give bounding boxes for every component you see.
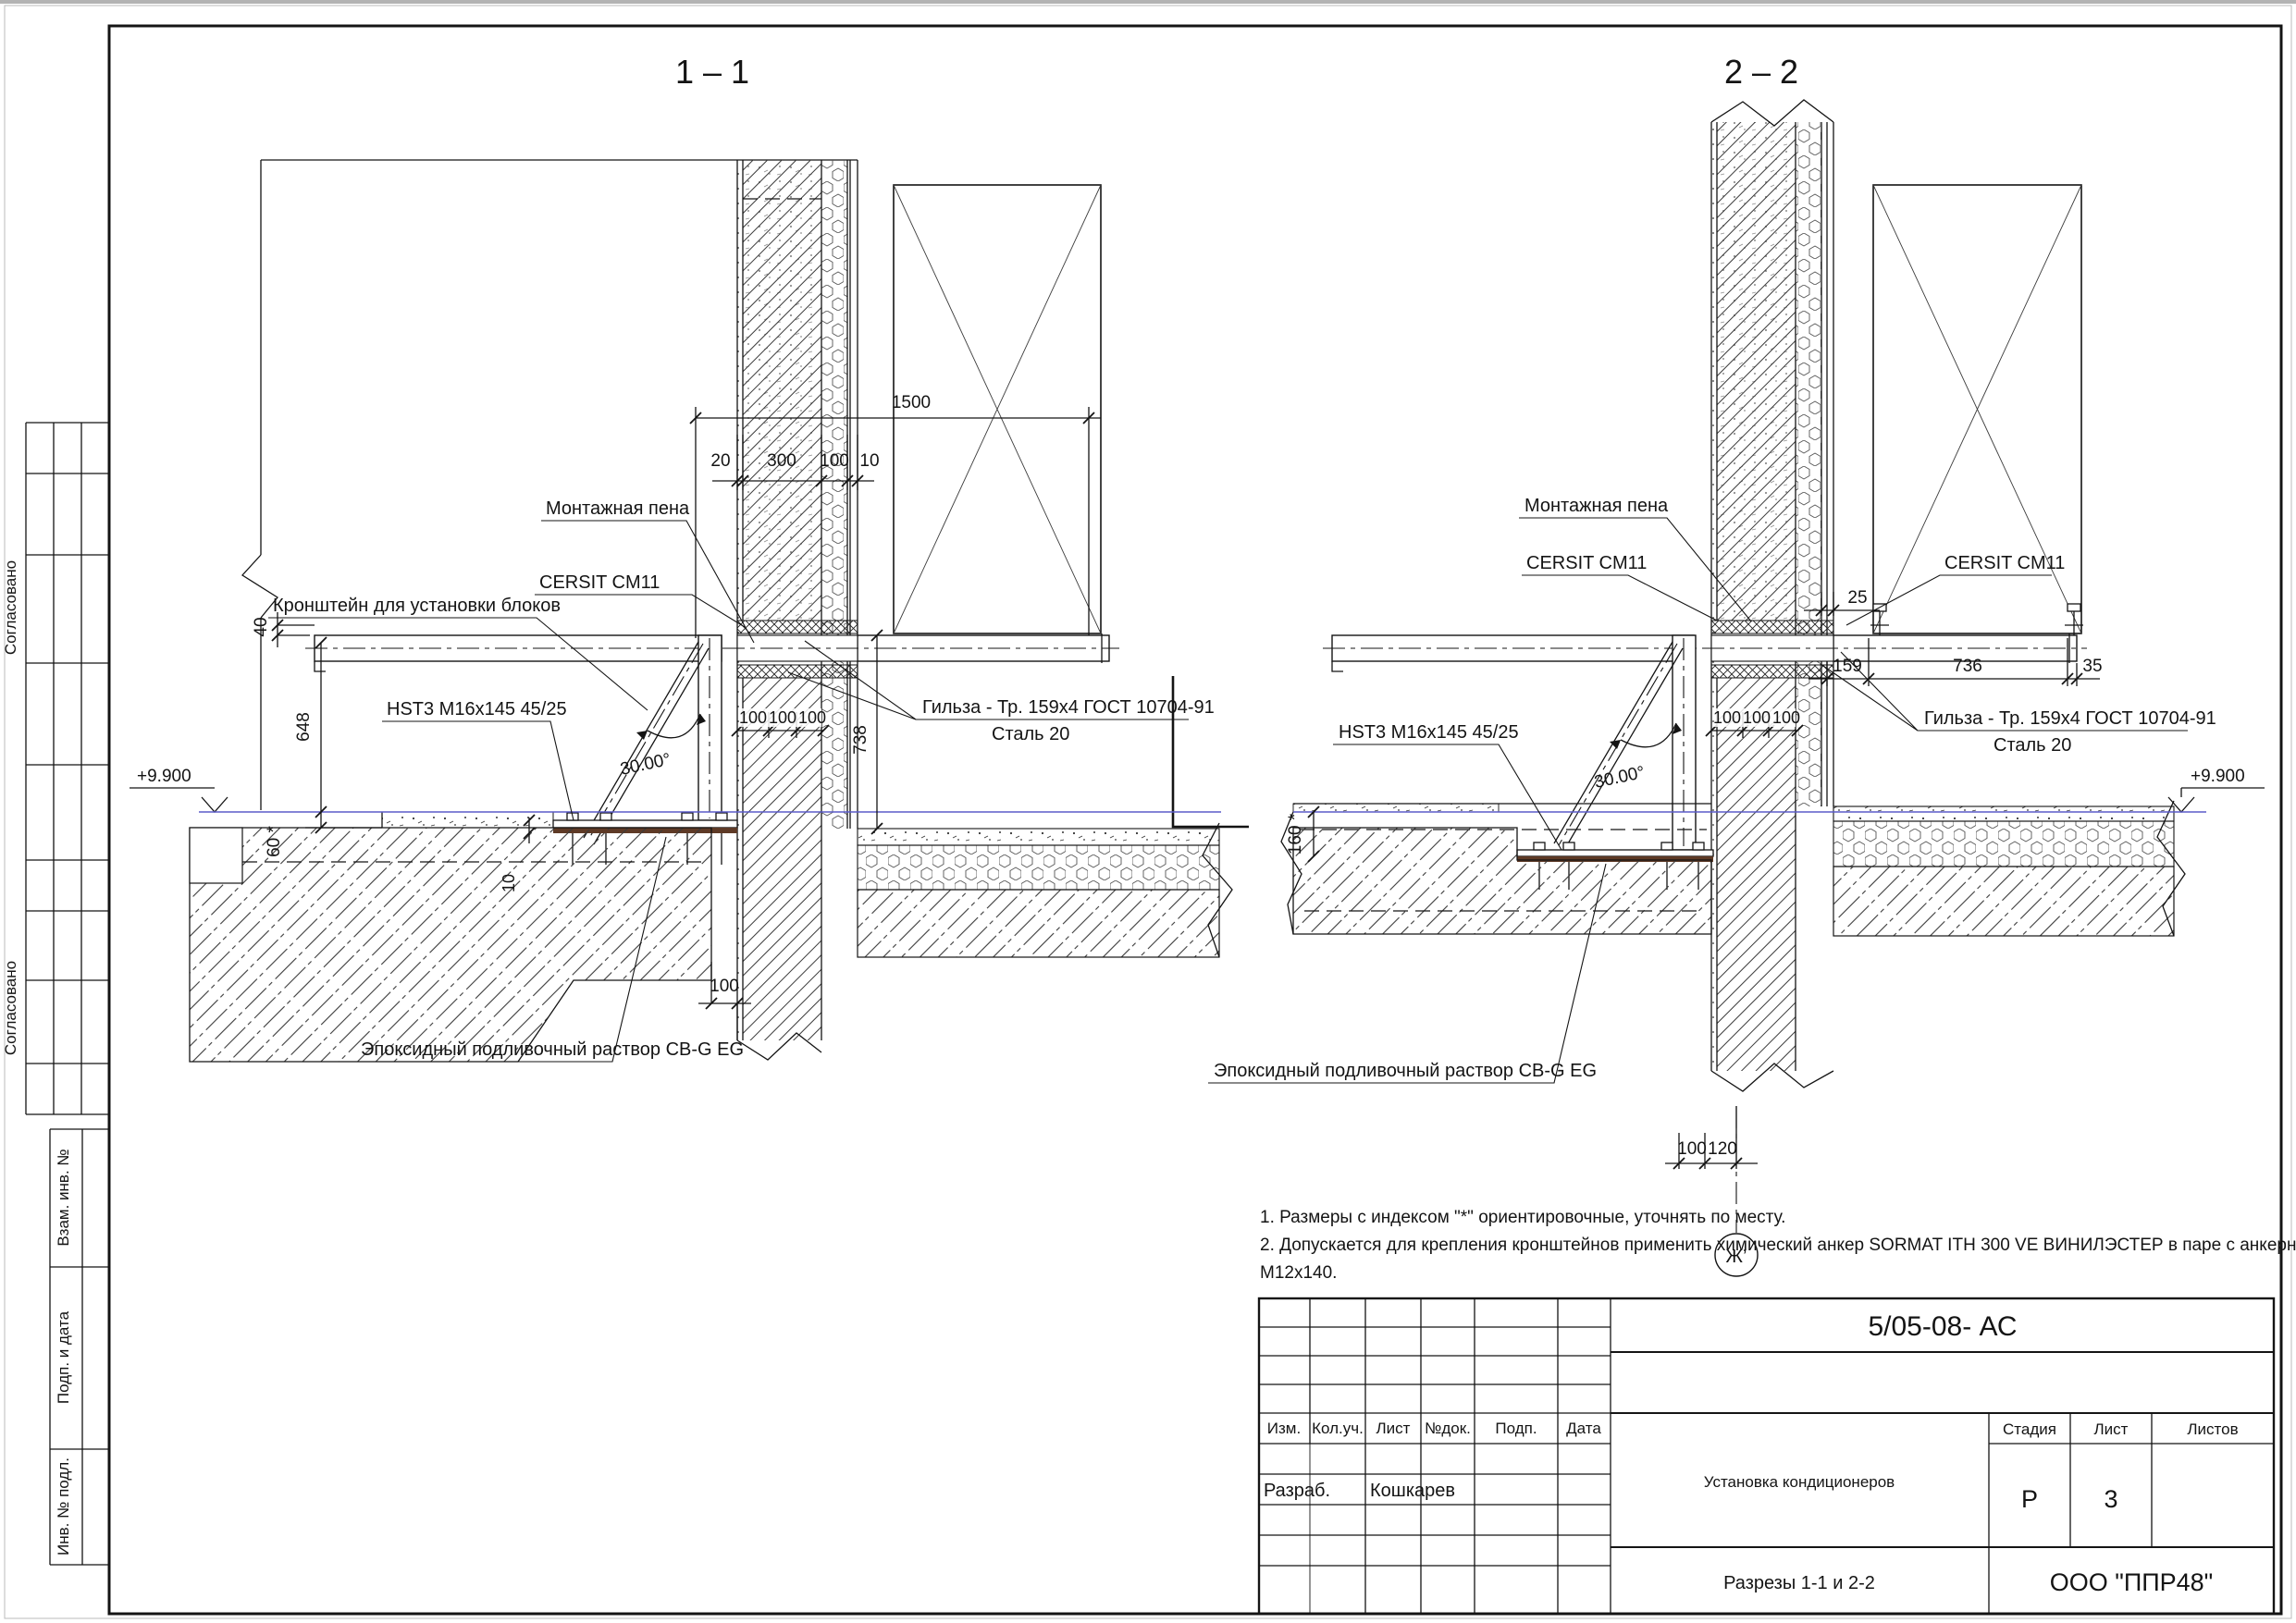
mortar-strip-top-11 bbox=[737, 621, 858, 633]
tb-h-ndok: №док. bbox=[1425, 1420, 1471, 1437]
tb-h-data: Дата bbox=[1566, 1420, 1601, 1437]
sidebar-label-soglasovano-1: Согласовано bbox=[2, 560, 19, 655]
dim-100-1-label-22: 100 bbox=[1713, 708, 1741, 727]
revision-table bbox=[1259, 1298, 1611, 1614]
tb-h-list: Лист bbox=[1376, 1420, 1411, 1437]
bracket-brace-22 bbox=[1554, 642, 1683, 850]
sidebar-table-2 bbox=[26, 860, 109, 1114]
dim-160-22: 160 * bbox=[1286, 806, 1319, 862]
dim-648-11: 648 bbox=[294, 637, 327, 818]
section-2-2: 2 – 2 30.00° bbox=[1208, 53, 2265, 1276]
base-plate-22 bbox=[1517, 850, 1713, 856]
title-block: Изм. Кол.уч. Лист №док. Подп. Дата Разра… bbox=[1259, 1298, 2274, 1614]
sidebar-label-vzam: Взам. инв. № bbox=[55, 1149, 72, 1246]
wall-concrete-upper-speckle-22 bbox=[1717, 122, 1796, 621]
svg-text:CERSIT CM11: CERSIT CM11 bbox=[539, 572, 660, 593]
svg-text:HST3 M16x145 45/25: HST3 M16x145 45/25 bbox=[387, 699, 567, 719]
label-hst-11: HST3 M16x145 45/25 bbox=[382, 699, 574, 820]
dim-100-3-label-11: 100 bbox=[798, 708, 826, 727]
exterior-floor-22 bbox=[1833, 801, 2185, 936]
note-line-3: М12х140. bbox=[1260, 1263, 1337, 1283]
interior-floor-22 bbox=[1281, 804, 1711, 934]
dim-20-label: 20 bbox=[710, 451, 730, 471]
tb-doc-number: 5/05-08- АС bbox=[1868, 1311, 2017, 1342]
arm-end-detail-11 bbox=[315, 661, 326, 671]
section-1-1: 1 – 1 30.00° bbox=[130, 53, 1249, 1062]
tb-sheet-label: Лист bbox=[2094, 1420, 2129, 1438]
dim-120-label: 120 bbox=[1708, 1139, 1737, 1159]
tb-h-podp: Подп. bbox=[1495, 1420, 1537, 1437]
tb-sheets-label: Листов bbox=[2187, 1420, 2238, 1438]
level-mark-11: +9.900 bbox=[130, 767, 1221, 812]
svg-text:Эпоксидный подливочный раствор: Эпоксидный подливочный раствор CB-G EG bbox=[1214, 1061, 1597, 1081]
angle-label-11: 30.00° bbox=[619, 750, 673, 780]
wall-top-break-22 bbox=[1711, 100, 1833, 126]
section-2-2-title: 2 – 2 bbox=[1724, 53, 1798, 91]
wall-concrete-lower-11 bbox=[743, 678, 821, 1040]
notes: 1. Размеры с индексом "*" ориентировочны… bbox=[1260, 1208, 2296, 1283]
sidebar-label-inv: Инв. № подл. bbox=[55, 1457, 72, 1555]
arm-end-detail-22 bbox=[1332, 661, 1343, 671]
dim-35-label: 35 bbox=[2082, 657, 2102, 676]
base-plate-11 bbox=[553, 820, 737, 828]
svg-text:Гильза - Тр. 159x4 ГОСТ 10704-: Гильза - Тр. 159x4 ГОСТ 10704-91 bbox=[1924, 708, 2216, 729]
dim-648-label: 648 bbox=[294, 712, 314, 742]
tb-company: ООО "ППР48" bbox=[2050, 1568, 2214, 1596]
svg-text:HST3 M16x145 45/25: HST3 M16x145 45/25 bbox=[1339, 722, 1519, 743]
drawing-sheet: Согласовано Согласовано Взам. инв. № Под… bbox=[0, 0, 2296, 1623]
dim-160-label: 160 * bbox=[1286, 813, 1305, 855]
label-montage-foam-11: Монтажная пена bbox=[541, 498, 754, 643]
svg-text:Монтажная пена: Монтажная пена bbox=[1524, 496, 1669, 516]
dim-10-label: 10 bbox=[859, 451, 879, 471]
dim-100-3-label-22: 100 bbox=[1772, 708, 1800, 727]
dim-300-label: 300 bbox=[767, 451, 796, 471]
tb-drawing-title: Разрезы 1-1 и 2-2 bbox=[1723, 1573, 1875, 1593]
svg-text:CERSIT CM11: CERSIT CM11 bbox=[1526, 553, 1647, 573]
dim-100-1-label-11: 100 bbox=[739, 708, 767, 727]
mortar-strip-bottom-22 bbox=[1711, 665, 1833, 678]
screenshot-top-edge bbox=[0, 0, 2296, 4]
sidebar-label-soglasovano-2: Согласовано bbox=[2, 961, 19, 1055]
dim-100-gap-label: 100 bbox=[710, 977, 739, 996]
wall-plaster-11 bbox=[737, 160, 743, 1040]
level-label-11: +9.900 bbox=[137, 767, 191, 786]
dim-736-label: 736 bbox=[1953, 657, 1982, 676]
label-cersit-left-22: CERSIT CM11 bbox=[1522, 553, 1717, 621]
label-cersit-11: CERSIT CM11 bbox=[535, 572, 745, 627]
angle-arrows-22 bbox=[1610, 723, 1682, 749]
wall-insulation-22 bbox=[1796, 122, 1821, 806]
sidebar-table-1 bbox=[26, 423, 109, 860]
dim-100-2-label-22: 100 bbox=[1743, 708, 1771, 727]
tb-stage-value: Р bbox=[2021, 1485, 2038, 1513]
tb-razrab-name: Кошкарев bbox=[1370, 1481, 1455, 1501]
level-label-22: +9.900 bbox=[2191, 767, 2245, 786]
svg-text:Сталь 20: Сталь 20 bbox=[992, 724, 1069, 744]
note-line-2: 2. Допускается для крепления кронштейнов… bbox=[1260, 1236, 2296, 1255]
dim-159-label: 159 bbox=[1833, 657, 1862, 676]
svg-text:Гильза - Тр. 159x4 ГОСТ 10704-: Гильза - Тр. 159x4 ГОСТ 10704-91 bbox=[922, 697, 1215, 718]
tb-h-koluch: Кол.уч. bbox=[1312, 1420, 1364, 1437]
angle-arrows-11 bbox=[636, 714, 706, 740]
wall-concrete-upper-speckle-11 bbox=[743, 160, 821, 621]
tb-project: Установка кондиционеров bbox=[1704, 1473, 1895, 1491]
tb-razrab-label: Разраб. bbox=[1264, 1481, 1330, 1501]
unit-bolts-22 bbox=[1870, 604, 2083, 635]
dim-738-label: 738 bbox=[851, 725, 870, 755]
dim-100-2-label-11: 100 bbox=[769, 708, 796, 727]
exterior-floor-11 bbox=[858, 676, 1249, 957]
drawing-canvas: Согласовано Согласовано Взам. инв. № Под… bbox=[0, 0, 2296, 1623]
wall-concrete-lower-22 bbox=[1717, 678, 1796, 1071]
angle-arc-22 bbox=[1621, 723, 1676, 747]
tb-sheet-value: 3 bbox=[2104, 1485, 2117, 1513]
section-1-1-title: 1 – 1 bbox=[675, 53, 749, 91]
dim-1500-label: 1500 bbox=[892, 393, 931, 412]
angle-label-22: 30.00° bbox=[1593, 763, 1647, 793]
svg-text:Сталь 20: Сталь 20 bbox=[1994, 735, 2071, 756]
dim-60-label: 60 * bbox=[265, 825, 284, 856]
sidebar: Согласовано Согласовано Взам. инв. № Под… bbox=[2, 423, 109, 1565]
dim-100b-label: 100 bbox=[1677, 1139, 1707, 1159]
tb-h-izm: Изм. bbox=[1267, 1420, 1301, 1437]
dim-100-wall-label: 100 bbox=[820, 451, 849, 471]
dim-40-label: 40 bbox=[252, 617, 271, 636]
dim-25-label: 25 bbox=[1847, 588, 1867, 608]
svg-text:Кронштейн для установки блоков: Кронштейн для установки блоков bbox=[273, 596, 561, 616]
svg-text:Эпоксидный подливочный раствор: Эпоксидный подливочный раствор CB-G EG bbox=[361, 1039, 744, 1060]
wall-plaster-22 bbox=[1711, 122, 1717, 1071]
sidebar-label-podp: Подп. и дата bbox=[55, 1310, 72, 1404]
svg-text:CERSIT CM11: CERSIT CM11 bbox=[1944, 553, 2065, 573]
tb-stage-label: Стадия bbox=[2003, 1420, 2056, 1438]
note-line-1: 1. Размеры с индексом "*" ориентировочны… bbox=[1260, 1208, 1785, 1227]
dim-100-120-22: 100 120 bbox=[1665, 1106, 1758, 1169]
mortar-strip-top-22 bbox=[1711, 621, 1833, 633]
dim-10-plate-label: 10 bbox=[500, 874, 518, 892]
svg-text:Монтажная пена: Монтажная пена bbox=[546, 498, 690, 519]
label-gilza-22: Гильза - Тр. 159x4 ГОСТ 10704-91 Сталь 2… bbox=[1821, 652, 2216, 756]
